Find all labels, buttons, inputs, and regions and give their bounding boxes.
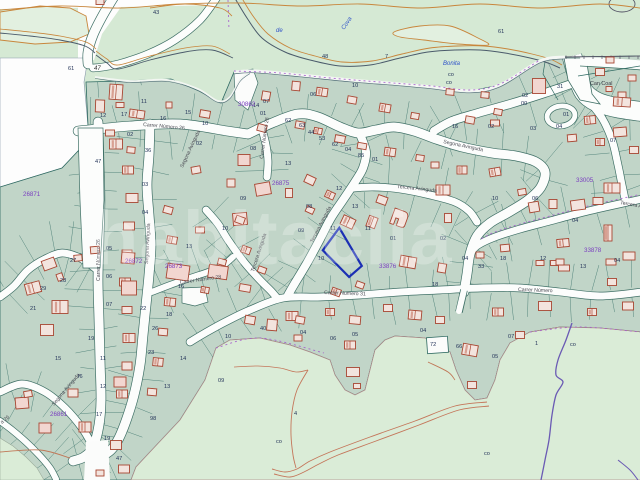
svg-text:62: 62 [285,118,291,124]
svg-text:47: 47 [95,159,101,165]
svg-text:03: 03 [142,182,148,188]
svg-text:10: 10 [225,334,231,340]
svg-text:co: co [276,439,282,445]
svg-text:33005: 33005 [576,177,594,184]
svg-text:13: 13 [285,161,291,167]
svg-text:22: 22 [140,306,146,312]
svg-text:12: 12 [336,186,342,192]
svg-text:11: 11 [100,356,106,362]
svg-text:Bonita: Bonita [443,61,461,67]
svg-text:1: 1 [535,341,538,347]
svg-text:26: 26 [152,326,158,332]
svg-text:7: 7 [385,54,388,60]
svg-text:02: 02 [196,141,202,147]
svg-text:08: 08 [250,146,256,152]
svg-text:27: 27 [70,258,76,264]
svg-text:18: 18 [166,312,172,318]
svg-text:01: 01 [260,111,266,117]
svg-text:16: 16 [178,284,184,290]
svg-text:02: 02 [522,93,528,99]
svg-text:13: 13 [580,264,586,270]
svg-text:62: 62 [332,142,338,148]
svg-text:06: 06 [310,92,316,98]
svg-text:10: 10 [202,121,208,127]
svg-text:28: 28 [60,278,66,284]
svg-text:16: 16 [160,116,166,122]
svg-text:02: 02 [488,124,494,130]
svg-text:33878: 33878 [584,247,602,254]
svg-text:04: 04 [420,328,426,334]
svg-text:01: 01 [563,112,569,118]
svg-text:23: 23 [148,350,154,356]
svg-text:18: 18 [500,256,506,262]
svg-text:43: 43 [153,10,159,16]
svg-text:07: 07 [610,138,616,144]
svg-text:10: 10 [492,196,498,202]
svg-text:66: 66 [456,344,462,350]
svg-text:12: 12 [100,113,106,119]
svg-text:16: 16 [452,124,458,130]
svg-text:36: 36 [145,148,151,154]
svg-text:26875: 26875 [272,180,290,187]
svg-text:15: 15 [185,110,191,116]
svg-text:co: co [570,342,576,348]
svg-text:44: 44 [308,130,314,136]
svg-text:19: 19 [88,336,94,342]
svg-text:05: 05 [352,332,358,338]
svg-text:33: 33 [478,264,484,270]
svg-text:11: 11 [141,99,147,105]
svg-text:de: de [276,28,283,34]
svg-text:18: 18 [432,282,438,288]
svg-text:17: 17 [121,112,127,118]
svg-text:10: 10 [352,83,358,89]
svg-text:26861: 26861 [50,411,68,418]
svg-text:04: 04 [300,330,306,336]
svg-text:02: 02 [127,132,133,138]
svg-text:co: co [446,80,452,86]
svg-text:12: 12 [540,256,546,262]
svg-text:72: 72 [430,342,436,348]
svg-text:05: 05 [492,354,498,360]
svg-text:04: 04 [572,218,578,224]
svg-text:04: 04 [614,258,620,264]
svg-text:00: 00 [521,101,527,107]
svg-text:04: 04 [345,147,351,153]
svg-text:habitaclia: habitaclia [92,196,453,281]
svg-text:61: 61 [498,29,504,35]
svg-text:co: co [484,451,490,457]
svg-text:17: 17 [96,412,102,418]
svg-text:co: co [448,72,454,78]
svg-text:30862: 30862 [238,101,256,108]
svg-text:29: 29 [40,286,46,292]
svg-text:07: 07 [508,334,514,340]
svg-text:21: 21 [30,306,36,312]
svg-text:31: 31 [557,84,563,90]
svg-text:09: 09 [218,378,224,384]
svg-text:15: 15 [55,356,61,362]
svg-text:01: 01 [372,157,378,163]
svg-text:06: 06 [532,196,538,202]
svg-text:Can Coal: Can Coal [590,81,612,87]
svg-text:47: 47 [116,456,122,462]
svg-text:61: 61 [68,66,74,72]
svg-text:85: 85 [358,153,364,159]
svg-text:53: 53 [319,136,325,142]
svg-text:14: 14 [180,356,186,362]
svg-text:04: 04 [556,124,562,130]
svg-text:26871: 26871 [23,191,41,198]
svg-text:48: 48 [322,54,328,60]
svg-text:19: 19 [104,436,110,442]
svg-text:98: 98 [150,416,156,422]
svg-text:07: 07 [263,99,269,105]
svg-text:04: 04 [462,256,468,262]
svg-text:03: 03 [530,126,536,132]
svg-text:4: 4 [294,411,297,417]
svg-text:f6: f6 [78,374,83,380]
svg-text:40: 40 [260,326,266,332]
svg-text:63: 63 [299,123,305,129]
svg-text:Carrer Número: Carrer Número [518,287,553,294]
svg-text:06: 06 [330,336,336,342]
svg-text:07: 07 [106,302,112,308]
svg-text:47: 47 [94,66,101,72]
svg-text:13: 13 [164,384,170,390]
svg-text:12: 12 [100,384,106,390]
